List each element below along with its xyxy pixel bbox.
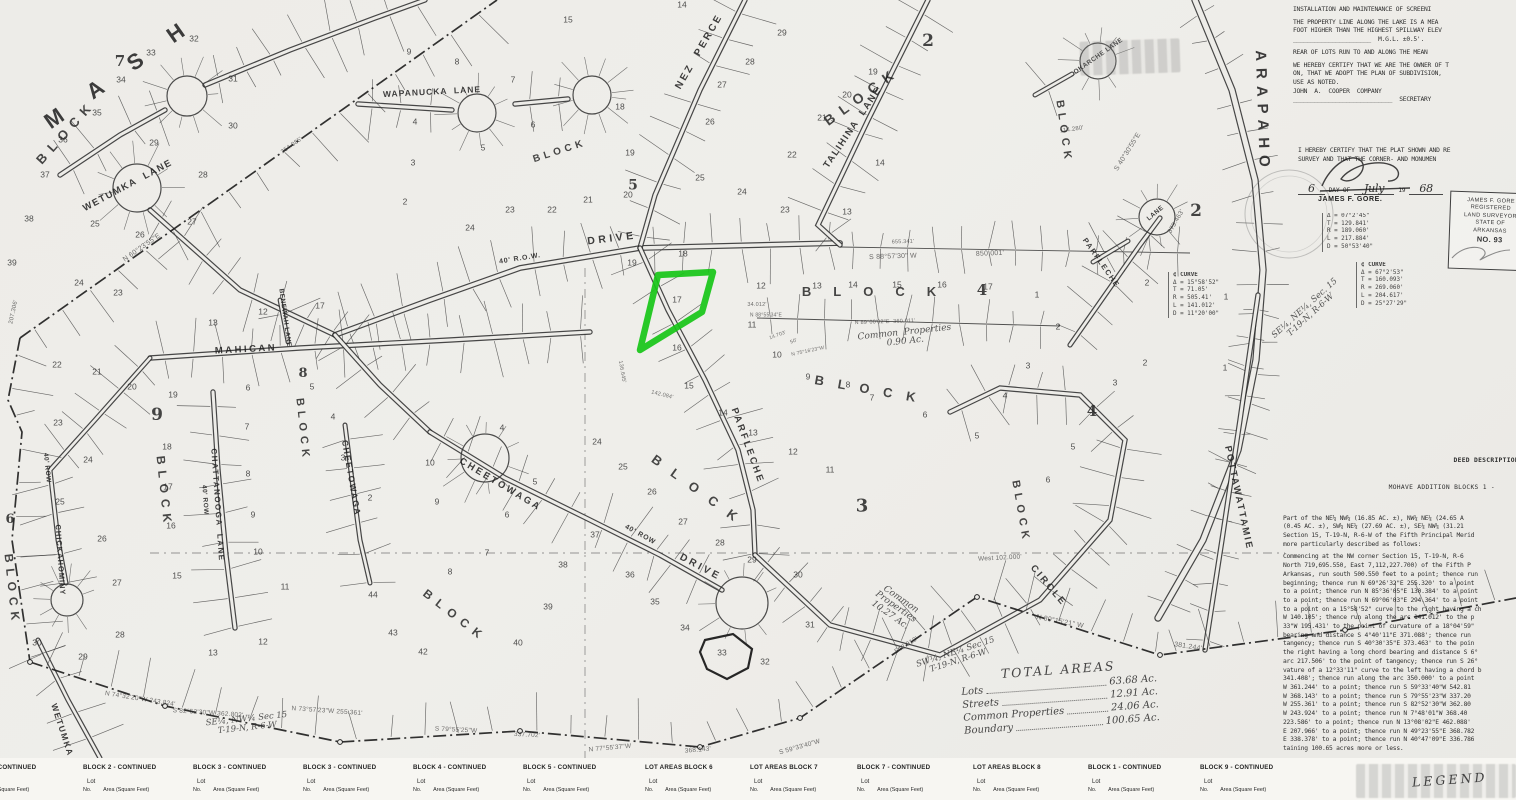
lot-number: 14 xyxy=(718,409,727,418)
street-name-label: CHEETOWAGA xyxy=(340,439,362,516)
lot-number: 27 xyxy=(187,218,196,227)
lot-number: 38 xyxy=(24,215,33,224)
table-column-header: BLOCK 7 - CONTINUED xyxy=(857,764,989,771)
lot-number: 37 xyxy=(590,531,599,540)
lot-number: 21 xyxy=(817,114,826,123)
lot-number: 15 xyxy=(563,16,572,25)
street-name-label: PARFLECHE xyxy=(729,407,766,485)
lot-number: 4 xyxy=(1003,392,1008,401)
total-areas-block: TOTAL AREAS Lots63.68 Ac.Streets12.91 Ac… xyxy=(960,655,1160,738)
lot-number: 23 xyxy=(53,419,62,428)
notes-line: JOHN A. COOPER COMPANY xyxy=(1293,88,1516,97)
lot-number: 13 xyxy=(812,282,821,291)
table-column-header: BLOCK 2 - CONTINUED xyxy=(0,764,95,771)
date-day: 6 xyxy=(1298,184,1325,195)
date-year: 68 xyxy=(1409,184,1443,195)
lot-number: 9 xyxy=(251,511,256,520)
lot-number: 22 xyxy=(547,206,556,215)
lot-number: 27 xyxy=(717,81,726,90)
deed-title: DEED DESCRIPTION xyxy=(1283,457,1516,466)
lot-number: 7 xyxy=(485,549,490,558)
block-number-label: 9 xyxy=(151,407,163,425)
lot-number: 24 xyxy=(83,456,92,465)
lot-number: 26 xyxy=(705,118,714,127)
dimension-label: N 88°55'34"E xyxy=(750,313,782,318)
plat-map-scan: M A S HWAPANUCKA LANENEZ PERCETALIHINA L… xyxy=(0,0,1516,800)
deed-line: 223.586' to a point; thence run N 13°08'… xyxy=(1283,719,1516,728)
lot-number: 26 xyxy=(135,231,144,240)
street-name-label: ARAPAHO xyxy=(1252,50,1272,174)
dimension-label: 368.143' xyxy=(685,746,712,755)
table-column-header: LOT AREAS BLOCK 8 xyxy=(973,764,1105,771)
lot-number: 9 xyxy=(806,373,811,382)
block-number-label: 7 xyxy=(115,54,125,70)
lot-number: 5 xyxy=(533,478,538,487)
block-letters-label: BLOCK xyxy=(293,398,311,463)
lot-number: 40 xyxy=(513,639,522,648)
deed-line: (0.45 AC. ±), SW¼ NE¼ (27.69 AC. ±), SE¼… xyxy=(1283,523,1516,532)
lot-number: 36 xyxy=(625,571,634,580)
lot-number: 30 xyxy=(228,122,237,131)
notes-line: ON, THAT WE ADOPT THE PLAN OF SUBDIVISIO… xyxy=(1293,70,1516,79)
certification-line: I HEREBY CERTIFY THAT THE PLAT SHOWN AND… xyxy=(1298,147,1516,156)
table-lot-subheader: Lot xyxy=(523,779,655,785)
lot-number: 20 xyxy=(127,383,136,392)
dimension-label: N 80°15'21" W xyxy=(1036,614,1085,630)
table-lot-subheader: Lot xyxy=(857,779,989,785)
lot-number: 19 xyxy=(168,391,177,400)
lot-number: 11 xyxy=(826,466,835,475)
dimension-label: S 79°55'25"W xyxy=(435,726,478,735)
deed-line: 33"W 195.431' to the point of curvature … xyxy=(1283,623,1516,632)
lot-number: 10 xyxy=(772,351,781,360)
street-name-label: POTTAWATTAMIE xyxy=(1222,445,1254,551)
certification-line: SURVEY AND THAT THE CORNER- AND MONUMEN xyxy=(1298,156,1516,165)
dimension-label: S 59°33'40"W xyxy=(779,739,822,757)
lot-number: 29 xyxy=(777,29,786,38)
notes-line: ______________________ M.G.L. ±0.5'. xyxy=(1293,36,1516,45)
table-column-header: BLOCK 9 - CONTINUED xyxy=(1200,764,1332,771)
dimension-label: S 88°57'30" W xyxy=(869,252,917,261)
lot-number: 4 xyxy=(413,118,418,127)
lot-number: 1 xyxy=(1224,293,1229,302)
lot-number: 35 xyxy=(650,598,659,607)
lot-number: 39 xyxy=(543,603,552,612)
lot-number: 5 xyxy=(1071,443,1076,452)
lot-number: 11 xyxy=(748,321,757,330)
lot-number: 19 xyxy=(868,68,877,77)
curve-data-table: ¢ CURVEΔ = 15°58'52"T = 71.05'R = 505.41… xyxy=(1168,272,1219,318)
table-lot-subheader: Lot xyxy=(973,779,1105,785)
deed-line: 341.408'; thence run along the arc 350.0… xyxy=(1283,675,1516,684)
lot-number: 2 xyxy=(368,494,373,503)
lot-number: 7 xyxy=(870,394,875,403)
lot-number: 6 xyxy=(923,411,928,420)
lot-number: 35 xyxy=(92,109,101,118)
lot-area-table-column: BLOCK 9 - CONTINUEDLotNo. Area (Square F… xyxy=(1200,764,1332,793)
deed-line: beginning; thence run N 69°26'32"E 255.3… xyxy=(1283,580,1516,589)
lot-area-table-column: BLOCK 5 - CONTINUEDLotNo. Area (Square F… xyxy=(523,764,655,793)
lot-number: 5 xyxy=(975,432,980,441)
lot-number: 9 xyxy=(407,48,412,57)
lot-number: 28 xyxy=(198,171,207,180)
notes-line: INSTALLATION AND MAINTENANCE OF SCREENI xyxy=(1293,6,1516,15)
lot-number: 23 xyxy=(505,206,514,215)
lot-number: 6 xyxy=(531,121,536,130)
deed-line: Arkansas, run south 500.550 feet to a po… xyxy=(1283,571,1516,580)
dimension-label: 373.463' xyxy=(1167,209,1186,235)
block-letters-label: BLOCK xyxy=(421,587,490,645)
block-number-label: 3 xyxy=(856,498,869,517)
lot-number: 15 xyxy=(172,572,181,581)
lot-number: 29 xyxy=(747,556,756,565)
lot-number: 16 xyxy=(672,344,681,353)
curve-value: R = 269.060' xyxy=(1361,285,1407,293)
lot-number: 31 xyxy=(228,75,237,84)
lot-number: 43 xyxy=(388,629,397,638)
lot-number: 34 xyxy=(680,624,689,633)
lot-number: 18 xyxy=(615,103,624,112)
street-name-label: DRIVE xyxy=(587,231,638,248)
curve-value: R = 505.41' xyxy=(1173,295,1219,303)
lot-number: 30 xyxy=(793,571,802,580)
lot-number: 9 xyxy=(435,498,440,507)
deed-line: W 140.105'; thence run along the arc 141… xyxy=(1283,614,1516,623)
lot-number: 25 xyxy=(618,463,627,472)
lot-number: 32 xyxy=(189,35,198,44)
lot-number: 6 xyxy=(505,511,510,520)
curve-value: D = 11°20'00" xyxy=(1173,311,1219,319)
lot-number: 21 xyxy=(583,196,592,205)
deed-subtitle: MOHAVE ADDITION BLOCKS 1 - xyxy=(1283,484,1516,493)
deed-line: tangency; thence run S 40°30'35"E 373.46… xyxy=(1283,640,1516,649)
block-number-label: 6 xyxy=(5,513,14,527)
lot-number: 1 xyxy=(1035,291,1040,300)
street-name-label: BENEWAH LANE xyxy=(277,288,292,347)
deed-line: W 255.361' to a point; thence run S 82°5… xyxy=(1283,701,1516,710)
dimension-label: West 102.000' xyxy=(978,554,1022,563)
curve-value: D = 50°53'40" xyxy=(1327,244,1373,252)
lot-number: 15 xyxy=(684,382,693,391)
lot-number: 7 xyxy=(245,423,250,432)
lot-number: 13 xyxy=(748,429,757,438)
lot-area-table-column: BLOCK 7 - CONTINUEDLotNo. Area (Square F… xyxy=(857,764,989,793)
lot-number: 20 xyxy=(842,91,851,100)
street-name-label: CHATTANOOGA LANE xyxy=(209,448,225,562)
notes-line: FOOT HIGHER THAN THE HIGHEST SPILLWAY EL… xyxy=(1293,27,1516,36)
lot-number: 10 xyxy=(253,548,262,557)
street-name-label: 40' ROW xyxy=(200,485,209,515)
dimension-label: 14.703' xyxy=(769,331,787,342)
lot-number: 37 xyxy=(40,171,49,180)
lot-number: 18 xyxy=(162,443,171,452)
lot-number: 22 xyxy=(787,151,796,160)
lot-number: 13 xyxy=(208,319,217,328)
lot-number: 24 xyxy=(74,279,83,288)
deed-line: taining 100.65 acres more or less. xyxy=(1283,745,1516,754)
dimension-label: 337.702' xyxy=(514,732,541,740)
block-number-label: 2 xyxy=(922,33,934,51)
map-annotation: CommonProperties10.27 Ac. xyxy=(867,583,922,633)
notes-line: THE PROPERTY LINE ALONG THE LAKE IS A ME… xyxy=(1293,19,1516,28)
watermark-top xyxy=(1079,38,1180,75)
table-lot-subheader: Lot xyxy=(1200,779,1332,785)
dimension-label: 207.306' xyxy=(8,299,19,324)
leader-dots xyxy=(1067,711,1108,715)
curve-value: D = 25°27'29" xyxy=(1361,301,1407,309)
curve-table-title: ¢ CURVE xyxy=(1361,262,1407,270)
lot-number: 11 xyxy=(281,583,290,592)
lot-number: 5 xyxy=(481,144,486,153)
lot-number: 31 xyxy=(805,621,814,630)
table-subcolumns: No. Area (Square Feet) xyxy=(0,787,95,793)
block-letters-label: BLOCK xyxy=(532,138,588,165)
lot-area-table-strip: BLOCK 2 - CONTINUEDLotNo. Area (Square F… xyxy=(0,758,1516,800)
lot-number: 6 xyxy=(246,384,251,393)
lot-number: 13 xyxy=(842,208,851,217)
lot-number: 38 xyxy=(558,561,567,570)
dimension-label: 542.910' xyxy=(894,636,920,656)
lot-number: 21 xyxy=(92,368,101,377)
owner-notes-block: INSTALLATION AND MAINTENANCE OF SCREENIT… xyxy=(1293,6,1516,105)
lot-number: 27 xyxy=(112,579,121,588)
street-name-label: CHEETOWAGA xyxy=(457,457,543,514)
dimension-label: N 77°55'37"W xyxy=(588,744,631,755)
curve-value: T = 129.841' xyxy=(1327,221,1373,229)
block-letters-label: BLOCK xyxy=(154,455,174,529)
street-name-label: LANE xyxy=(1146,205,1165,223)
lot-area-table-column: LOT AREAS BLOCK 8LotNo. Area (Square Fee… xyxy=(973,764,1105,793)
table-column-header: BLOCK 5 - CONTINUED xyxy=(523,764,655,771)
lot-number: 33 xyxy=(146,49,155,58)
deed-line: more particularly described as follows: xyxy=(1283,541,1516,550)
dimension-label: 136.645' xyxy=(616,360,626,383)
lot-number: 24 xyxy=(737,188,746,197)
lot-number: 25 xyxy=(55,498,64,507)
dimension-label: 34.012' xyxy=(747,303,766,309)
deed-line: to a point on a 15°58'52" curve to the r… xyxy=(1283,606,1516,615)
lot-number: 8 xyxy=(846,381,851,390)
curve-value: L = 141.012' xyxy=(1173,303,1219,311)
lot-number: 2 xyxy=(1056,323,1061,332)
curve-data-table: Δ = 07°2'45"T = 129.841'R = 189.060'L = … xyxy=(1322,213,1373,252)
table-subcolumns: No. Area (Square Feet) xyxy=(857,787,989,793)
street-name-label: 40' ROW xyxy=(623,524,656,547)
dimension-label: 354.085' xyxy=(280,136,304,155)
lot-number: 3 xyxy=(1113,379,1118,388)
lot-number: 26 xyxy=(97,535,106,544)
deed-line: the right having a long chord bearing an… xyxy=(1283,649,1516,658)
lot-number: 5 xyxy=(310,383,315,392)
street-name-label: WETUMKA xyxy=(49,703,74,758)
lot-number: 10 xyxy=(425,459,434,468)
surveyor-printed-name: JAMES F. GORE. xyxy=(1318,196,1382,203)
dimension-label: N 74°32'20"W 243.824' xyxy=(104,691,175,709)
street-name-label: CHICKAHOMINY xyxy=(54,524,67,596)
lot-number: 17 xyxy=(315,302,324,311)
lot-number: 7 xyxy=(511,76,516,85)
lot-number: 12 xyxy=(756,282,765,291)
curve-value: L = 204.617' xyxy=(1361,293,1407,301)
date-dayof-label: DAY OF xyxy=(1329,187,1350,196)
lot-number: 12 xyxy=(788,448,797,457)
dimension-label: 850.001' xyxy=(976,250,1004,258)
lot-number: 34 xyxy=(116,76,125,85)
lot-number: 30 xyxy=(32,639,41,648)
deed-line: to a point; thence run N 69°06'03"E 294.… xyxy=(1283,597,1516,606)
lot-number: 25 xyxy=(90,220,99,229)
curve-table-title: ¢ CURVE xyxy=(1173,272,1219,280)
lot-number: 17 xyxy=(672,296,681,305)
lot-number: 28 xyxy=(115,631,124,640)
dimension-label: 50' xyxy=(790,338,798,345)
lot-number: 3 xyxy=(1026,362,1031,371)
lot-number: 3 xyxy=(411,159,416,168)
deed-line: North 719,695.550, East 7,112,227.700) o… xyxy=(1283,562,1516,571)
curve-value: Δ = 67°2'53" xyxy=(1361,270,1407,278)
lot-number: 29 xyxy=(78,653,87,662)
lot-number: 16 xyxy=(166,522,175,531)
street-name-label: M A S H xyxy=(40,11,200,133)
table-subcolumns: No. Area (Square Feet) xyxy=(523,787,655,793)
block-letters-label: BLOCK xyxy=(1009,479,1032,544)
lot-number: 4 xyxy=(500,424,505,433)
street-name-label: CIRCLE xyxy=(1028,564,1068,609)
lot-number: 39 xyxy=(7,259,16,268)
table-lot-subheader: Lot xyxy=(0,779,95,785)
table-subcolumns: No. Area (Square Feet) xyxy=(1200,787,1332,793)
street-name-label: 40' R.O.W. xyxy=(499,252,542,266)
lot-number: 2 xyxy=(1145,279,1150,288)
lot-number: 23 xyxy=(113,289,122,298)
notes-line: WE HEREBY CERTIFY THAT WE ARE THE OWNER … xyxy=(1293,62,1516,71)
lot-number: 42 xyxy=(418,648,427,657)
street-name-label: MAHICAN xyxy=(215,343,278,356)
lot-number: 12 xyxy=(258,638,267,647)
street-name-label: 40' ROW xyxy=(41,453,51,484)
surveyor-stamp: JAMES F. GORE REGISTERED LAND SURVEYOR S… xyxy=(1448,191,1516,272)
lot-number: 14 xyxy=(875,159,884,168)
dimension-label: N 73°57'23"W 255.361' xyxy=(291,706,363,718)
watermark-bottom xyxy=(1356,764,1516,798)
curve-value: Δ = 15°58'52" xyxy=(1173,280,1219,288)
street-name-label: DRIVE xyxy=(677,553,722,584)
lot-number: 19 xyxy=(627,259,636,268)
deed-line: arc 217.506' to the point of tangency; t… xyxy=(1283,658,1516,667)
lot-number: 1 xyxy=(1223,364,1228,373)
deed-description-block: DEED DESCRIPTION MOHAVE ADDITION BLOCKS … xyxy=(1283,440,1516,771)
deed-line: E 338.378' to a point; thence run N 40°4… xyxy=(1283,736,1516,745)
lot-number: 8 xyxy=(448,568,453,577)
street-name-label: WETUMKA LANE xyxy=(82,158,175,214)
deed-line: to a point; thence run N 85°36'05"E 130.… xyxy=(1283,588,1516,597)
date-year-prefix: 19 xyxy=(1398,187,1405,196)
lot-number: 6 xyxy=(1046,476,1051,485)
lot-number: 14 xyxy=(848,281,857,290)
lot-number: 28 xyxy=(715,539,724,548)
lot-number: 4 xyxy=(331,413,336,422)
lot-number: 8 xyxy=(455,58,460,67)
lot-number: 25 xyxy=(695,174,704,183)
section-label: SE¼, NE¼, Sec. 15T-19-N, R-6-W xyxy=(1271,277,1346,347)
curve-value: T = 160.093' xyxy=(1361,277,1407,285)
date-month: July xyxy=(1354,184,1394,195)
lot-number: 22 xyxy=(52,361,61,370)
deed-line: Section 15, T-19-N, R-6-W of the Fifth P… xyxy=(1283,532,1516,541)
lot-number: 23 xyxy=(780,206,789,215)
dimension-label: N 89°00'02"E 360.011' xyxy=(855,319,916,327)
lot-number: 20 xyxy=(623,191,632,200)
lot-area-table-column: BLOCK 2 - CONTINUEDLotNo. Area (Square F… xyxy=(0,764,95,793)
notes-line: USE AS NOTED. xyxy=(1293,79,1516,88)
map-annotation: Common Properties0.90 Ac. xyxy=(857,324,952,353)
block-letters-label: BLOCK xyxy=(2,553,22,627)
curve-data-table: ¢ CURVEΔ = 67°2'53"T = 160.093'R = 269.0… xyxy=(1356,262,1407,308)
block-letters-label: BLOCK xyxy=(649,452,751,531)
deed-line: E 207.966' to a point; thence run N 49°2… xyxy=(1283,728,1516,737)
lot-number: 24 xyxy=(465,224,474,233)
lot-number: 8 xyxy=(246,470,251,479)
lot-number: 44 xyxy=(368,591,377,600)
dimension-label: 381.244' xyxy=(1173,641,1202,653)
lot-number: 14 xyxy=(677,1,686,10)
notes-line: REAR OF LOTS RUN TO AND ALONG THE MEAN xyxy=(1293,49,1516,58)
lot-number: 19 xyxy=(625,149,634,158)
lot-number: 24 xyxy=(592,438,601,447)
lot-number: 15 xyxy=(892,281,901,290)
lot-number: 33 xyxy=(717,649,726,658)
dimension-label: S 40°30'55"E xyxy=(1113,132,1142,173)
deed-line: W 361.244' to a point; thence run S 59°3… xyxy=(1283,684,1516,693)
lot-number: 13 xyxy=(208,649,217,658)
curve-value: T = 71.05' xyxy=(1173,287,1219,295)
street-name-label: WAPANUCKA LANE xyxy=(383,85,481,99)
dimension-label: N 75°16'23"W xyxy=(791,346,825,358)
deed-line: Commencing at the NW corner Section 15, … xyxy=(1283,553,1516,562)
block-letters-label: BLOCK xyxy=(802,285,958,299)
lot-number: 18 xyxy=(678,250,687,259)
lot-number: 27 xyxy=(678,518,687,527)
block-number-label: 2 xyxy=(1190,203,1202,221)
lot-number: 17 xyxy=(983,283,992,292)
lot-number: 29 xyxy=(149,139,158,148)
lot-number: 36 xyxy=(58,136,67,145)
dimension-label: 142.084' xyxy=(650,390,673,401)
curve-value: L = 217.884' xyxy=(1327,236,1373,244)
lot-number: 12 xyxy=(258,308,267,317)
lot-number: 2 xyxy=(1143,359,1148,368)
notes-line: ____________________________ SECRETARY xyxy=(1293,96,1516,105)
lot-number: 3 xyxy=(341,454,346,463)
lot-number: 2 xyxy=(403,198,408,207)
lot-number: 32 xyxy=(760,658,769,667)
lot-number: 26 xyxy=(647,488,656,497)
curve-value: R = 189.060' xyxy=(1327,228,1373,236)
street-name-label: PARFLECHE xyxy=(1081,237,1121,290)
deed-line: W 243.924' to a point; thence run N 7°48… xyxy=(1283,710,1516,719)
lot-number: 28 xyxy=(745,58,754,67)
deed-line: vature of a 12°33'11" curve to the left … xyxy=(1283,667,1516,676)
lot-number: 16 xyxy=(937,281,946,290)
block-number-label: 8 xyxy=(298,367,307,381)
table-subcolumns: No. Area (Square Feet) xyxy=(973,787,1105,793)
lot-number: 17 xyxy=(163,483,172,492)
block-number-label: 4 xyxy=(1087,404,1097,420)
curve-value: Δ = 07°2'45" xyxy=(1327,213,1373,221)
stamp-number: NO. 93 xyxy=(1450,235,1516,245)
dimension-label: 655.341' xyxy=(892,240,915,247)
